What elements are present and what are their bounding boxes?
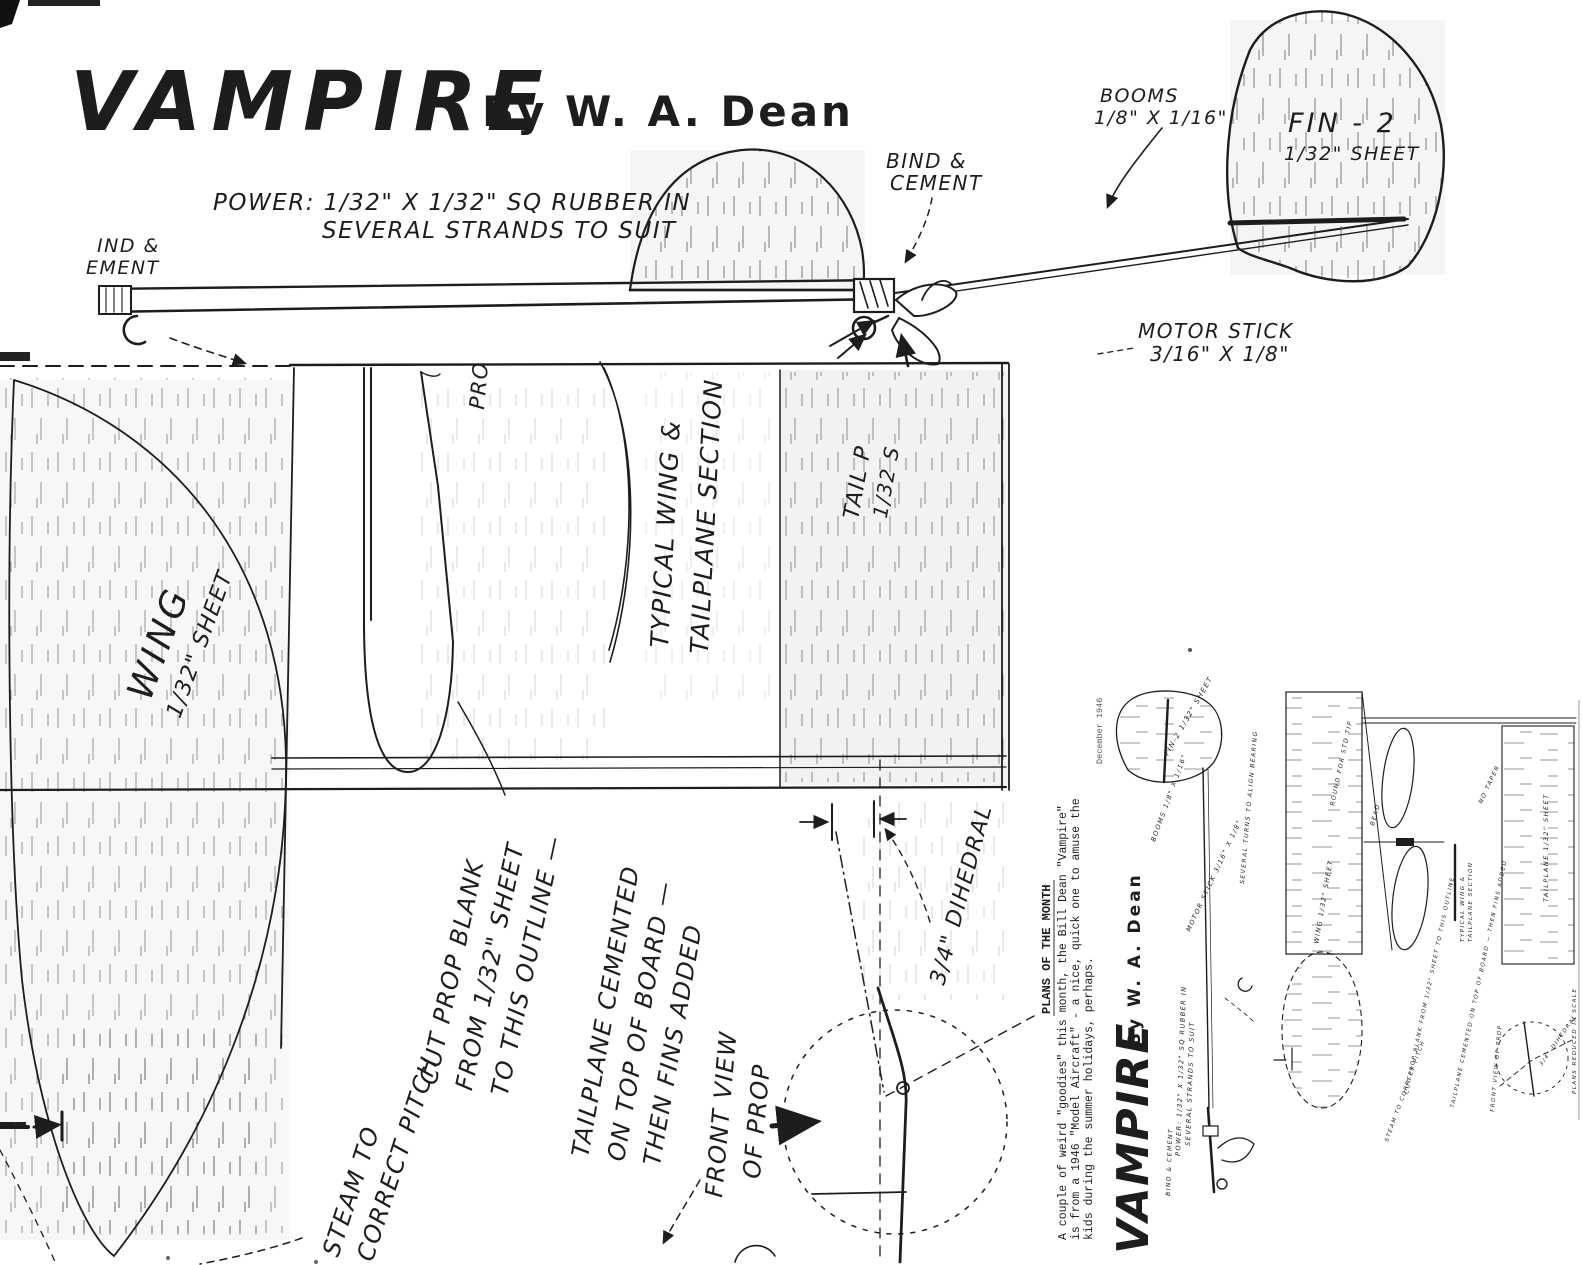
inset-section-label-line2: TAILPLANE SECTION — [1468, 861, 1474, 942]
front-view-label-line2: OF PROP — [738, 1062, 776, 1179]
inset-bead-label: BEAD — [1369, 803, 1382, 827]
bind-cement-line1: BIND & — [886, 149, 967, 173]
booms-leader — [1108, 128, 1162, 206]
plan-drawing: VAMPIRE By W. A. Dean POWER: 1/32" X 1/3… — [0, 0, 1582, 1265]
prop-blade-lower — [892, 318, 940, 365]
inset-turns-label: SEVERAL TURNS TO ALIGN BEARING — [1239, 730, 1259, 884]
bind-cement-left-line2: EMENT — [86, 257, 160, 279]
inset-boom-plan — [1362, 718, 1576, 723]
fin-label-line1: FIN - 2 — [1288, 108, 1397, 139]
inset-bearing — [1203, 1126, 1218, 1136]
page-title: VAMPIRE — [70, 55, 553, 150]
inset-fin — [1116, 691, 1221, 782]
inset-tailplane-note-label: TAILPLANE CEMENTED ON TOP OF BOARD — THE… — [1450, 859, 1509, 1108]
inset-bind-cement-label: BIND & CEMENT — [1165, 1128, 1174, 1196]
motor-stick-bottom-line — [104, 299, 886, 312]
power-note-line1: POWER: 1/32" X 1/32" SQ RUBBER IN — [213, 190, 691, 216]
inset-motor-stick — [1208, 1108, 1214, 1192]
prop-fragment-label: PRO — [465, 360, 493, 410]
inset-motor-stick-label: MOTOR STICK 3/16" X 1/8" — [1185, 818, 1244, 933]
inset-caption: PLANS OF THE MONTH A couple of weird "go… — [1040, 698, 1105, 1240]
prop-blade-upper — [896, 284, 956, 316]
scanned-plan-page: VAMPIRE By W. A. Dean POWER: 1/32" X 1/3… — [0, 0, 1582, 1265]
plan-top-edge — [290, 363, 1008, 365]
prop-blade-front — [878, 988, 906, 1262]
prop-hub — [897, 1082, 909, 1094]
booms-label-line2: 1/8" X 1/16" — [1094, 107, 1228, 129]
fin-label-line2: 1/32" SHEET — [1284, 143, 1420, 165]
inset-byline: By W. A. Dean — [1125, 872, 1145, 1046]
inset-page-footer: December 1946 — [1095, 698, 1105, 764]
inset-prop-blade — [1218, 1138, 1254, 1162]
stick-end-cap — [99, 286, 131, 314]
motor-stick-leader — [1098, 348, 1134, 354]
caption-heading: PLANS OF THE MONTH — [1040, 884, 1054, 1014]
inset-section-label-line1: TYPICAL WING & — [1460, 875, 1466, 942]
rear-hook — [124, 316, 145, 344]
inset-boom — [1203, 768, 1209, 1108]
front-ref-line — [812, 1192, 906, 1194]
inset-steam-label: STEAM TO CORRECT PITCH — [1384, 1040, 1426, 1143]
inset-thumbnail: PLANS OF THE MONTH A couple of weird "go… — [1040, 675, 1579, 1254]
caption-line3: kids during the summer holidays, perhaps… — [1083, 957, 1096, 1240]
booms-label-line1: BOOMS — [1100, 85, 1179, 107]
tailplane-note-leader — [664, 1180, 700, 1242]
bind-cement-left-line1: IND & — [97, 235, 160, 257]
inset-prop-lower-blade — [1387, 844, 1433, 951]
inset-front-view-label: FRONT VIEW OF PROP — [1490, 1024, 1504, 1112]
inset-wing-tip — [1282, 952, 1362, 1108]
motor-stick-label-line1: MOTOR STICK — [1138, 319, 1294, 343]
steam-leader — [200, 1238, 302, 1264]
caption-line1: A couple of weird "goodies" this month, … — [1057, 805, 1070, 1240]
inset-scale-note-label: PLANS REDUCED IN SCALE — [1572, 988, 1578, 1094]
front-view-label-line1: FRONT VIEW — [700, 1030, 742, 1199]
inset-prop-hook — [1217, 1179, 1227, 1189]
prop-blank-left-edge — [364, 368, 371, 625]
inset-prop-upper-blade — [1377, 727, 1419, 830]
caption-line2: is from a 1946 "Model Aircraft" - a nice… — [1070, 798, 1083, 1240]
page-byline: By W. A. Dean — [482, 87, 854, 136]
motor-stick-label-line2: 3/16" X 1/8" — [1150, 342, 1290, 366]
inset-no-taper-label: NO TAPER — [1477, 764, 1501, 805]
hook-leader-arrow — [170, 338, 244, 363]
inset-tailplane-label: TAILPLANE 1/32" SHEET — [1542, 793, 1550, 902]
power-note-line2: SEVERAL STRANDS TO SUIT — [322, 218, 677, 244]
bind-cement-line2: CEMENT — [890, 171, 983, 195]
front-view-arrow — [772, 1122, 812, 1126]
inset-tailplane — [1502, 726, 1574, 964]
bind-cement-leader — [906, 198, 932, 261]
inset-title: VAMPIRE — [1108, 1022, 1159, 1254]
inset-cut-prop-label: CUT PROP BLANK FROM 1/32" SHEET TO THIS … — [1404, 876, 1456, 1094]
prop-pointer-arrow — [830, 322, 872, 346]
